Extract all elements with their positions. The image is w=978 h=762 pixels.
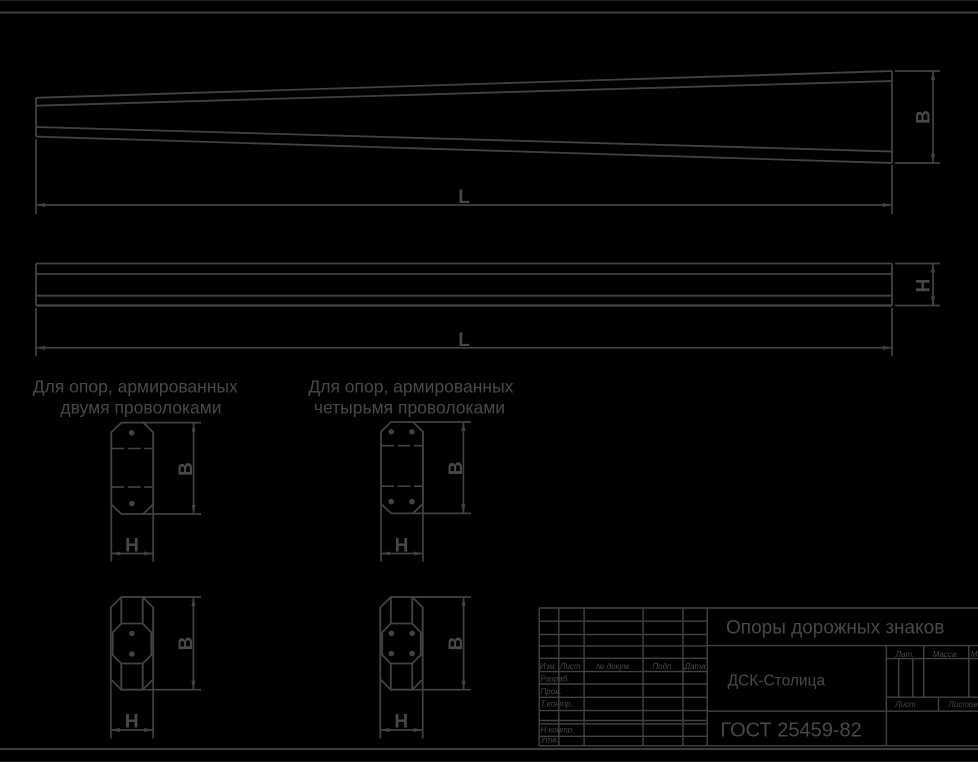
svg-text:Масса: Масса (933, 650, 957, 659)
svg-text:H: H (395, 536, 409, 557)
svg-text:Дата: Дата (683, 662, 706, 671)
svg-text:Для опор, армированных: Для опор, армированных (33, 376, 238, 396)
svg-text:Н.контр.: Н.контр. (541, 726, 575, 735)
svg-text:двумя проволоками: двумя проволоками (60, 397, 221, 417)
svg-text:№ докум.: № докум. (596, 662, 631, 671)
svg-text:Лист: Лист (559, 662, 581, 671)
svg-text:L: L (458, 330, 470, 351)
svg-text:Т.контр.: Т.контр. (541, 700, 573, 709)
svg-text:L: L (458, 187, 470, 208)
svg-text:ДСК-Столица: ДСК-Столица (728, 673, 826, 690)
svg-text:H: H (125, 712, 139, 733)
svg-text:Масштаб: Масштаб (971, 650, 978, 659)
svg-text:Опоры дорожных знаков: Опоры дорожных знаков (726, 618, 944, 639)
svg-text:H: H (125, 536, 139, 557)
svg-text:B: B (446, 637, 467, 651)
svg-text:B: B (914, 110, 935, 124)
svg-text:Листов: Листов (947, 700, 977, 709)
svg-text:Подп.: Подп. (652, 662, 673, 671)
svg-text:H: H (394, 712, 408, 733)
svg-text:Лит.: Лит. (895, 650, 915, 659)
svg-text:Пров.: Пров. (541, 687, 562, 696)
svg-text:B: B (176, 462, 197, 476)
svg-text:четырьмя проволоками: четырьмя проволоками (314, 397, 505, 417)
svg-text:Изм.: Изм. (540, 662, 557, 671)
svg-text:Для опор, армированных: Для опор, армированных (308, 376, 513, 396)
svg-text:B: B (176, 637, 197, 651)
svg-text:ГОСТ 25459-82: ГОСТ 25459-82 (720, 720, 861, 742)
svg-text:H: H (914, 279, 935, 293)
svg-text:B: B (446, 461, 467, 475)
svg-text:Утв.: Утв. (540, 736, 559, 745)
svg-text:Разраб.: Разраб. (541, 675, 570, 684)
svg-text:Лист: Лист (894, 700, 916, 709)
